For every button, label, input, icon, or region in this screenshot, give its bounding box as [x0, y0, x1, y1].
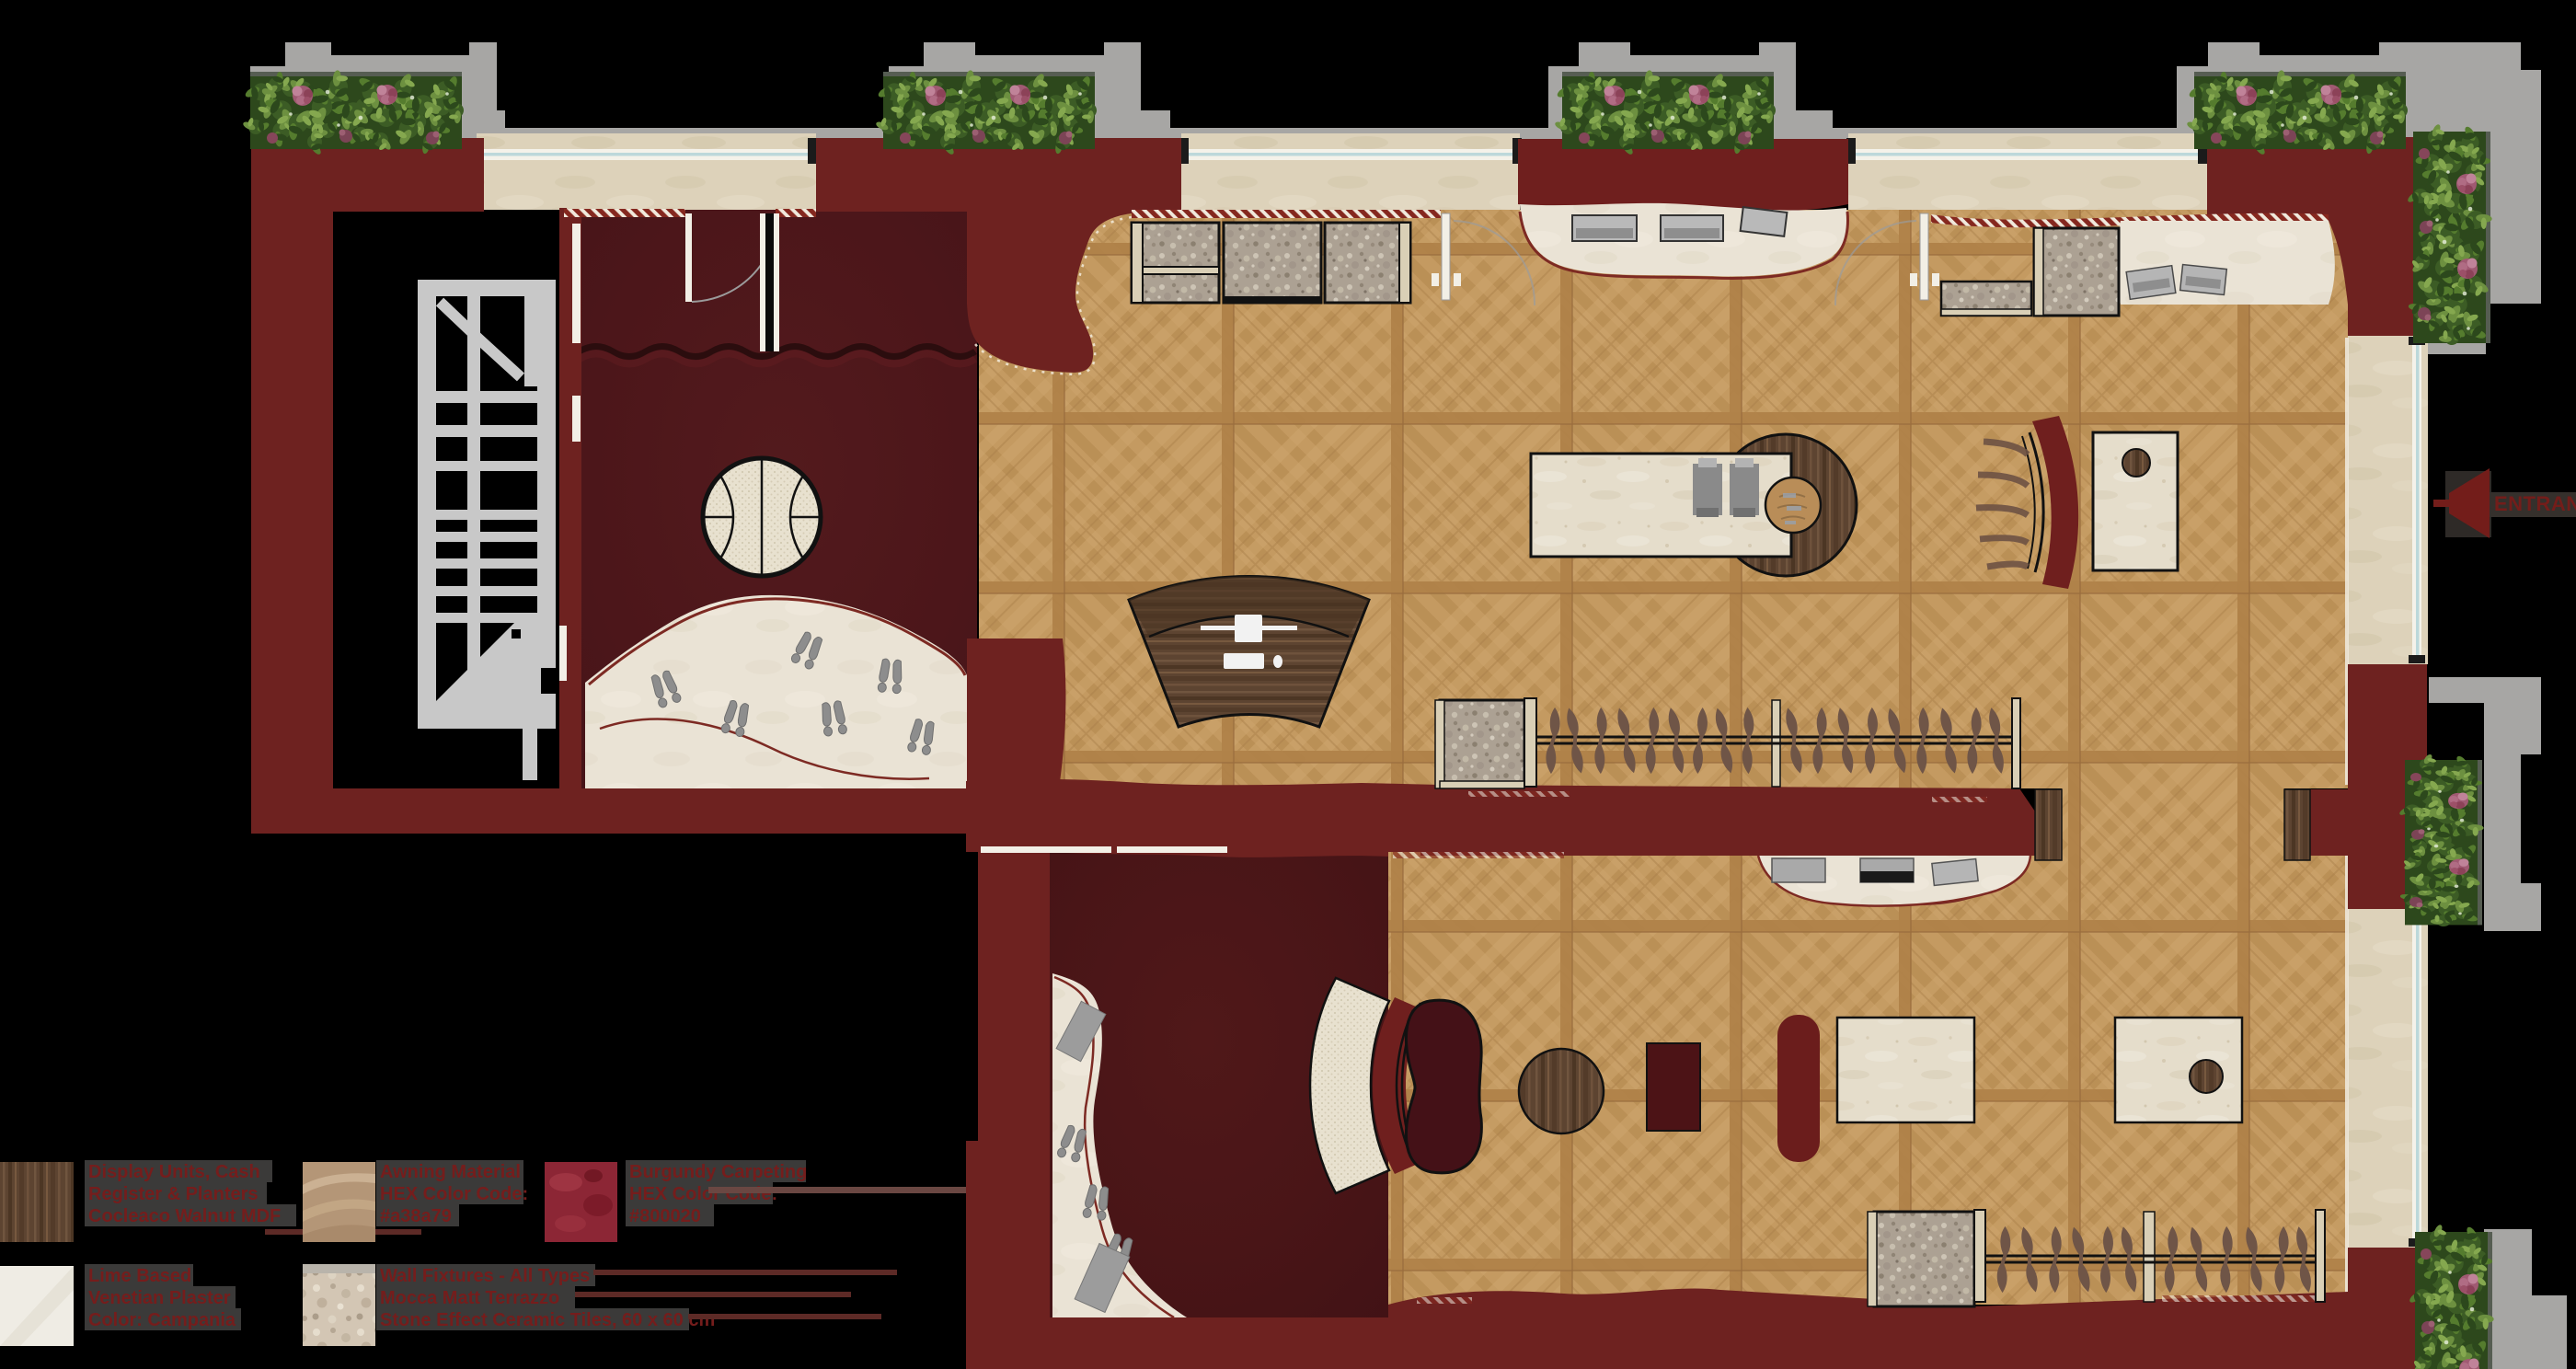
svg-text:Lime Based: Lime Based — [88, 1266, 191, 1286]
svg-text:#800020: #800020 — [629, 1206, 701, 1226]
svg-text:Venetian Plaster: Venetian Plaster — [88, 1288, 231, 1308]
svg-text:Awning Material: Awning Material — [380, 1162, 521, 1182]
svg-text:Display Units, Cash: Display Units, Cash — [88, 1162, 260, 1182]
svg-text:Wall Fixtures - All Types: Wall Fixtures - All Types — [380, 1266, 590, 1286]
svg-text:HEX Color Code:: HEX Color Code: — [380, 1184, 528, 1204]
svg-text:#a38a79: #a38a79 — [380, 1206, 452, 1226]
svg-text:Stone Effect Ceramic Tiles, 60: Stone Effect Ceramic Tiles, 60 x 60 cm — [380, 1310, 715, 1330]
svg-text:Register & Planters: Register & Planters — [88, 1184, 259, 1204]
svg-text:Cocleaco Walnut MDF: Cocleaco Walnut MDF — [88, 1206, 281, 1226]
svg-text:Burgundy Carpeting: Burgundy Carpeting — [629, 1162, 807, 1182]
svg-text:Mocca Matt Terrazzo: Mocca Matt Terrazzo — [380, 1288, 559, 1308]
svg-text:Color: Campania: Color: Campania — [88, 1310, 236, 1330]
svg-text:ENTRANCE: ENTRANCE — [2494, 492, 2576, 515]
